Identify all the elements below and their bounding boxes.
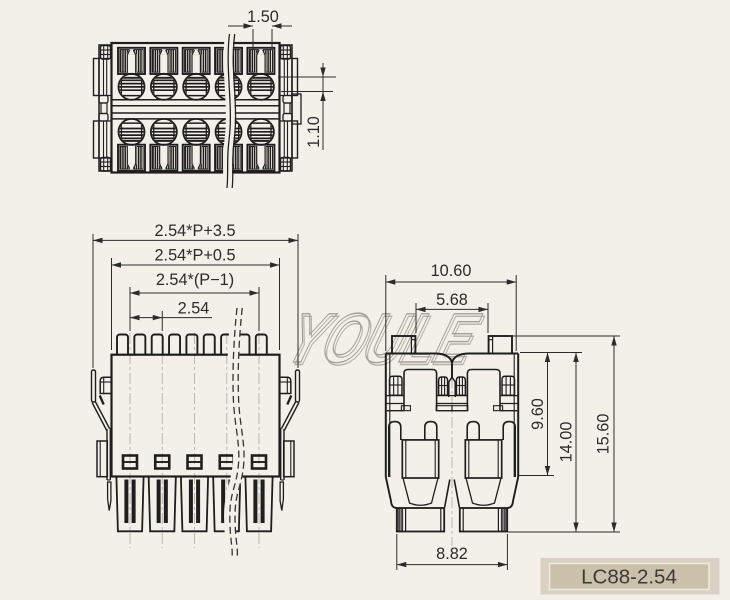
svg-text:10.60: 10.60	[431, 262, 472, 280]
svg-text:2.54: 2.54	[178, 300, 210, 318]
svg-text:1.50: 1.50	[247, 8, 279, 26]
svg-text:5.68: 5.68	[436, 291, 468, 309]
svg-text:2.54*P+3.5: 2.54*P+3.5	[154, 222, 235, 240]
svg-text:8.82: 8.82	[436, 545, 468, 563]
svg-text:LC88-2.54: LC88-2.54	[581, 566, 677, 589]
svg-text:YOULE: YOULE	[277, 300, 488, 378]
svg-text:15.60: 15.60	[595, 414, 613, 455]
svg-text:14.00: 14.00	[558, 422, 576, 463]
svg-text:1.10: 1.10	[305, 116, 323, 148]
svg-text:2.54*P+0.5: 2.54*P+0.5	[154, 247, 235, 265]
svg-text:2.54*(P−1): 2.54*(P−1)	[156, 271, 234, 289]
svg-text:9.60: 9.60	[529, 398, 547, 430]
